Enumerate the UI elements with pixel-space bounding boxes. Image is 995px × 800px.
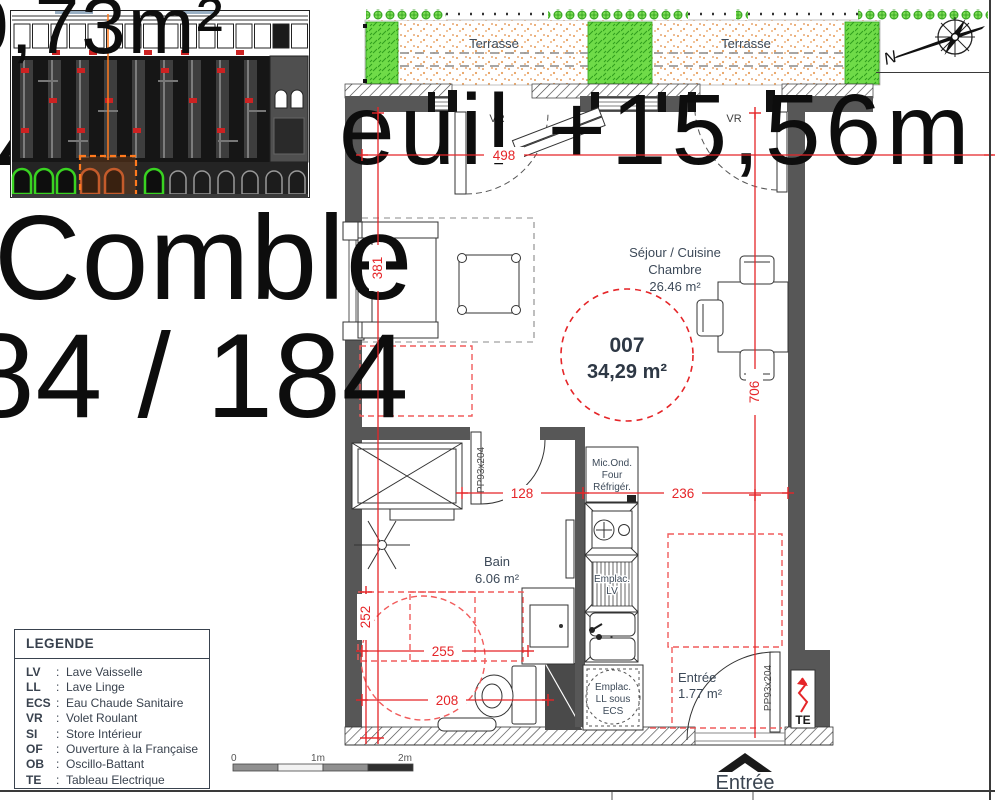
entry-area-value: 1.77 m² (678, 686, 723, 701)
bath-area: 6.06 m² (475, 571, 520, 586)
room-label-area: 26.46 m² (649, 279, 701, 294)
overlay-comble-text: Comble (0, 198, 414, 318)
kitchen-label-3: Réfrigér. (593, 482, 631, 493)
legend-box: LEGENDE LV:Lave Vaisselle LL:Lave Linge … (14, 629, 210, 789)
scale-bar: 0 1m 2m (231, 753, 413, 771)
overlay-seuil-clip: seuil +15,56m (340, 80, 995, 205)
floorplan-sheet: Terrasse Terrasse (0, 0, 995, 800)
overlay-seuil-text: seuil +15,56m (340, 80, 939, 180)
terrace-left-label: Terrasse (469, 36, 519, 51)
legend-item-vr: VR:Volet Roulant (26, 711, 201, 726)
kitchen-label-2: Four (602, 470, 623, 481)
legend-item-si: SI:Store Intérieur (26, 727, 201, 742)
legend-item-ecs: ECS:Eau Chaude Sanitaire (26, 696, 201, 711)
sheet-frame-right (989, 0, 991, 800)
ll-label-1: Emplac. (595, 682, 631, 693)
legend-title: LEGENDE (15, 630, 209, 659)
room-label-line1: Séjour / Cuisine (629, 245, 721, 260)
lv-label-2: LV (606, 586, 618, 597)
room-label-line2: Chambre (648, 262, 701, 277)
kitchen-label-1: Mic.Ond. (592, 458, 632, 469)
legend-rows: LV:Lave Vaisselle LL:Lave Linge ECS:Eau … (15, 659, 209, 788)
terrace-right-label: Terrasse (721, 36, 771, 51)
legend-item-of: OF:Ouverture à la Française (26, 742, 201, 757)
scale-0: 0 (231, 753, 237, 764)
scale-1m: 1m (311, 753, 325, 764)
unit-number: 007 (609, 334, 644, 357)
sheet-frame-bottom (0, 790, 995, 792)
te-label: TE (795, 713, 810, 727)
ll-label-3: ECS (603, 706, 624, 717)
bathroom: Bain 6.06 m² PP93x204 (352, 432, 574, 731)
entry-name: Entrée (678, 670, 716, 685)
entrance-marker: Entrée (716, 753, 775, 794)
compass-rose: N (878, 2, 993, 74)
legend-item-ll: LL:Lave Linge (26, 680, 201, 695)
overlay-fraction-text: 184 / 184 (0, 316, 409, 436)
compass-box-line (876, 72, 990, 73)
scale-2m: 2m (398, 753, 412, 764)
legend-item-te: TE:Tableau Electrique (26, 773, 201, 788)
entry-door-tag: PP93x204 (763, 664, 774, 711)
elevation-unit-highlight (80, 156, 136, 197)
living-furniture (358, 218, 788, 380)
ll-label-2: LL sous (596, 694, 631, 705)
legend-item-lv: LV:Lave Vaisselle (26, 665, 201, 680)
lv-label-1: Emplac. (594, 574, 630, 585)
overlay-area-top: 0,73m² (0, 0, 225, 66)
kitchen-column: Mic.Ond. Four Réfrigér. Emplac. LV Em (583, 447, 643, 730)
legend-item-ob: OB:Oscillo-Battant (26, 757, 201, 772)
unit-area: 34,29 m² (587, 361, 667, 383)
bath-door-tag: PP93x204 (476, 446, 487, 493)
bath-name: Bain (484, 554, 510, 569)
